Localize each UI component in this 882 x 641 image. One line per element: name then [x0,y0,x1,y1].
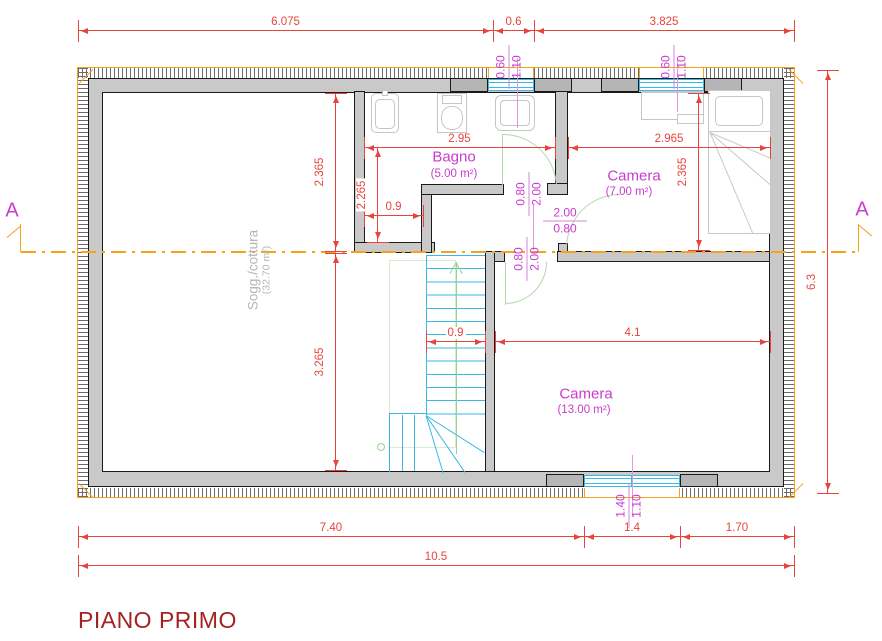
dim-left-3265: 3.265 [335,253,336,470]
dim-bottom-14: 1.4 [584,536,680,537]
stair-winder-tread-2 [414,415,415,471]
section-arrow-right [858,224,872,236]
lintel-bagno-window-right [534,78,572,92]
wall-camera-large-left [485,251,495,472]
dim-bagno-niche: 0.9 [364,215,423,216]
label-window-camera-large: 1.401.10 [615,484,644,528]
label-window-bagno: 0.601.10 [495,45,524,89]
dim-top-6075: 6.075 [78,30,493,31]
hatch-right [784,68,794,497]
wall-bagno-left [354,91,365,253]
room-label-camera-large: Camera [559,386,612,403]
room-area-camera-large: (13.00 m²) [557,404,610,416]
bed-pillow [715,96,763,126]
section-line [21,251,859,253]
hatch-left [78,68,88,497]
room-label-camera-small: Camera [607,168,660,185]
washbasin-bowl [375,99,395,129]
section-marker-left: A [5,200,18,223]
wall-bagno-bottom [421,184,504,195]
lintel-camera-large-window-right [680,474,718,487]
label-window-camera-small: 0.601.10 [660,45,689,89]
dim-top-06: 0.6 [493,30,534,31]
dim-overall-width: 10.5 [78,565,794,566]
nightstand-drawer [677,114,704,124]
dim-top-3825: 3.825 [534,30,794,31]
toilet-bowl [441,106,463,130]
wall-camera-small-left [555,91,568,190]
lintel-camera-large-window-left [546,474,584,487]
sink-bowl [500,100,530,126]
section-flag-right [858,224,859,252]
stair-winder-tread-1 [402,415,403,471]
door-leaf-bagno [502,134,503,188]
floor-plan-canvas: A A 6.075 0.6 3.825 2.95 2.965 0.9 0.9 4… [0,0,882,641]
page-title: PIANO PRIMO [78,607,237,634]
lintel-camera-small-window-left [601,78,639,92]
stair-winder-top [389,413,427,414]
section-marker-right: A [855,199,868,222]
label-door-camera-large: 0.802.00 [513,237,542,281]
section-arrow-left [7,226,21,238]
door-leaf-camera-large [505,262,506,305]
stair-direction-arrow-shaft [456,262,457,454]
hatch-bottom [78,488,794,497]
stair-winder-left [389,413,390,472]
room-area-camera-small: (7.00 m²) [606,186,653,198]
dim-bottom-740: 7.40 [78,536,584,537]
dim-bottom-170: 1.70 [680,536,794,537]
dim-left-2365: 2.365 [335,93,336,251]
room-label-bagno: Bagno [432,149,475,166]
dim-camera-small-depth: 2.365 [698,93,699,250]
dim-camera-small-width: 2.965 [568,147,770,148]
toilet-cistern [442,95,462,104]
section-flag-left [20,224,21,252]
room-area-bagno: (5.00 m²) [431,168,478,180]
label-door-bagno: 0.802.00 [515,172,544,216]
washbasin-tap [382,90,388,96]
dim-camera-large-width: 4.1 [495,341,770,342]
dim-bagno-depth: 2.265 [377,147,378,242]
label-door-camera-small: 2.000.80 [543,207,587,236]
bed-blanket-edge [708,131,771,132]
stair-start-marker [377,443,385,451]
dim-overall-height: 6.3 [827,70,828,493]
room-label-soggiorno: Sogg./cottura (32.70 m²) [246,230,273,310]
dim-stair-width: 0.9 [426,341,485,342]
lintel-bagno-window-left [450,78,488,92]
